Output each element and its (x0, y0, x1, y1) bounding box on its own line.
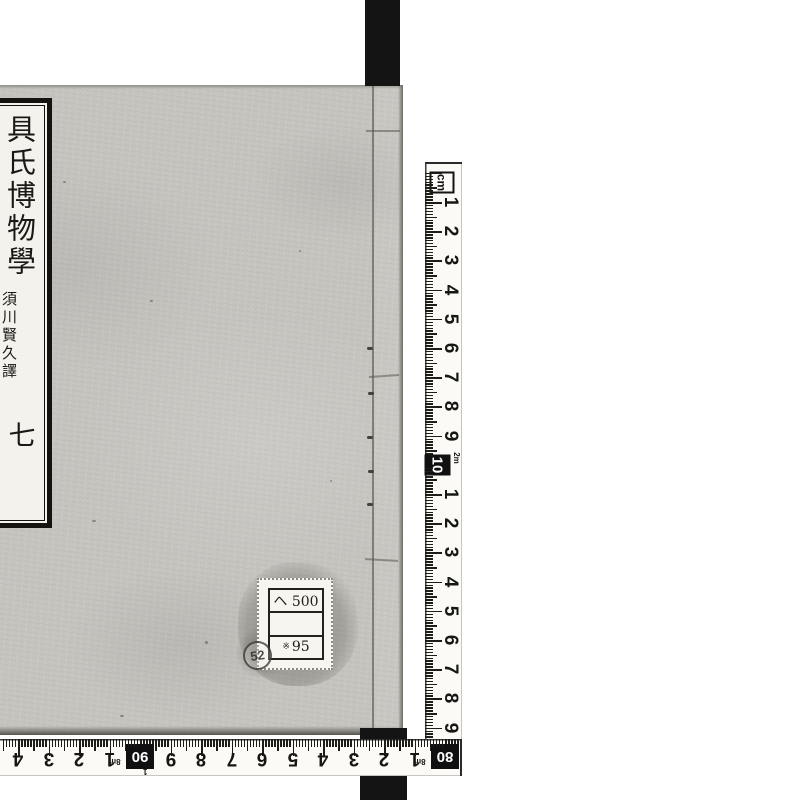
ruler-tick (425, 716, 433, 718)
ruler-tick (265, 739, 267, 747)
ruler-tick (425, 614, 433, 616)
ruler-tick (329, 739, 331, 747)
ruler-tick (277, 739, 279, 751)
ruler-tick (271, 739, 273, 747)
ruler-tick (425, 570, 433, 572)
ruler-tick (425, 666, 433, 668)
ruler-tick (387, 739, 389, 747)
ruler-tick (425, 506, 433, 508)
ruler-tick (425, 187, 437, 189)
call-number-row2 (270, 613, 322, 636)
ruler-tick (425, 695, 433, 697)
ruler-tick (183, 739, 185, 747)
ruler-tick (235, 739, 237, 747)
paper-fleck (330, 480, 332, 482)
ruler-tick (425, 421, 437, 423)
ruler-tick (425, 214, 433, 216)
ruler-tick (192, 739, 194, 747)
ruler-tick (425, 503, 433, 505)
ruler-tick (259, 739, 261, 747)
ruler-digit: 9 (440, 718, 460, 738)
ruler-tick (425, 316, 433, 318)
ruler-tick (425, 672, 433, 674)
ruler-tick (425, 544, 433, 546)
ruler-tick (425, 272, 433, 274)
ruler-tick (425, 310, 433, 312)
ruler-tick (425, 368, 433, 370)
ruler-tick (103, 739, 105, 747)
ruler-tick (433, 739, 435, 747)
horizontal-ruler: 808m123456789908m11234 (0, 739, 462, 776)
ruler-tick (425, 731, 433, 733)
ruler-tick (225, 739, 227, 747)
ruler-tick (418, 739, 420, 747)
ruler-tick (204, 739, 206, 747)
binding-stitch (367, 436, 373, 439)
ruler-tick (425, 681, 433, 683)
ruler-tick (131, 739, 133, 747)
ruler-tick (189, 739, 191, 747)
ruler-tick (425, 269, 433, 271)
ruler-tick (64, 739, 66, 751)
ruler-digit: 1 (405, 748, 425, 768)
ruler-tick (425, 532, 433, 534)
ruler-tick (425, 500, 433, 502)
ruler-tick (425, 351, 433, 353)
ruler-digit: 8 (440, 396, 460, 416)
ruler-tick (425, 360, 433, 362)
ruler-tick (425, 284, 433, 286)
ruler-tick (314, 739, 316, 747)
ruler-tick (425, 430, 433, 432)
ruler-tick (425, 693, 433, 695)
ruler-tick (425, 620, 433, 622)
ruler-tick (425, 564, 433, 566)
paper-fleck (299, 250, 301, 252)
ruler-tick (425, 363, 437, 365)
ruler-tick (94, 739, 96, 751)
ruler-tick (425, 333, 437, 335)
ruler-tick (425, 631, 433, 633)
ruler-tick (425, 579, 433, 581)
ruler-tick (3, 739, 5, 751)
ruler-digit: 5 (440, 309, 460, 329)
ruler-tick (344, 739, 346, 747)
ruler-tick (97, 739, 99, 747)
paper-fleck (63, 181, 66, 183)
ruler-tick (396, 739, 398, 747)
ruler-digit: 1 (440, 192, 460, 212)
ruler-tick (137, 739, 139, 747)
ruler-tick (366, 739, 368, 747)
ruler-tick (369, 739, 371, 751)
ruler-digit: 4 (313, 748, 333, 768)
ruler-tick (296, 739, 298, 747)
ruler-tick (253, 739, 255, 747)
ruler-tick (42, 739, 44, 747)
ruler-decade-box: 90 (126, 744, 154, 769)
ruler-tick (402, 739, 404, 747)
ruler-tick (195, 739, 197, 747)
ruler-tick (425, 401, 433, 403)
ruler-tick (425, 491, 433, 493)
ruler-tick (210, 739, 212, 747)
ruler-tick (425, 255, 433, 257)
ruler-tick (85, 739, 87, 747)
ruler-tick (216, 739, 218, 751)
ruler-tick (21, 739, 23, 747)
ruler-tick (425, 184, 433, 186)
ruler-tick (67, 739, 69, 747)
ruler-tick (222, 739, 224, 747)
ruler-tick (425, 713, 437, 715)
ruler-tick (425, 389, 433, 391)
ruler-tick (425, 474, 433, 476)
ruler-tick (425, 374, 433, 376)
call-number-row1: ヘ 500 (270, 590, 322, 613)
ruler-tick (425, 234, 433, 236)
ruler-tick (305, 739, 307, 747)
title-label-inner-border: 具氏博物學 須川賢久譯 七 (0, 105, 45, 521)
ruler-tick (425, 637, 433, 639)
title-label: 具氏博物學 須川賢久譯 七 (0, 98, 52, 528)
ruler-tick (425, 558, 433, 560)
ruler-tick (186, 739, 188, 751)
ruler-digit: 2 (69, 748, 89, 768)
ruler-tick (122, 739, 124, 747)
ruler-tick (393, 739, 395, 747)
ruler-tick (425, 605, 433, 607)
ruler-tick (425, 220, 433, 222)
book-cover: 具氏博物學 須川賢久譯 七 ヘ 500 ※ 95 52 (0, 85, 403, 735)
binding-stitch (367, 503, 373, 506)
ruler-tick (425, 266, 433, 268)
ruler-tick (425, 678, 433, 680)
ruler-tick (158, 739, 160, 747)
ruler-tick (425, 263, 433, 265)
ruler-tick (425, 634, 433, 636)
ruler-digit: 4 (8, 748, 28, 768)
ruler-tick (425, 252, 433, 254)
cm-unit-label: cm (430, 172, 455, 194)
ruler-tick (425, 298, 433, 300)
call-number-row3: ※ 95 (270, 637, 322, 658)
ruler-tick (425, 660, 433, 662)
ruler-tick (425, 395, 433, 397)
ruler-tick (425, 602, 433, 604)
ruler-tick (332, 739, 334, 747)
ruler-tick (250, 739, 252, 747)
ruler-tick (425, 339, 433, 341)
ruler-tick (439, 739, 441, 747)
ruler-tick (390, 739, 392, 747)
ruler-tick (6, 739, 8, 747)
ruler-tick (425, 304, 437, 306)
ruler-digit: 5 (440, 601, 460, 621)
ruler-tick (425, 307, 433, 309)
ruler-tick (425, 392, 437, 394)
ruler-tick (425, 205, 433, 207)
cover-bottom-edge (0, 726, 403, 735)
binding-stitch (368, 470, 374, 473)
ruler-tick (52, 739, 54, 747)
ruler-tick (425, 684, 437, 686)
ruler-tick (213, 739, 215, 747)
ruler-tick (82, 739, 84, 747)
ruler-tick (425, 424, 433, 426)
ruler-tick (317, 739, 319, 747)
ruler-tick (350, 739, 352, 747)
ruler-tick (425, 345, 433, 347)
ruler-tick (73, 739, 75, 747)
ruler-tick (425, 182, 433, 184)
ruler-tick (113, 739, 115, 747)
ruler-decade-box: 10 (425, 454, 451, 475)
paper-fleck (120, 715, 124, 717)
ruler-tick (430, 739, 432, 751)
ruler-tick (425, 439, 433, 441)
ruler-tick (425, 330, 433, 332)
ruler-tick (425, 342, 433, 344)
ruler-tick (228, 739, 230, 747)
ruler-tick (244, 739, 246, 747)
ruler-tick (425, 415, 433, 417)
ruler-tick (425, 655, 437, 657)
ruler-tick (274, 739, 276, 747)
ruler-tick (425, 450, 437, 452)
ruler-digit: 4 (440, 280, 460, 300)
ruler-tick (357, 739, 359, 747)
ruler-tick (425, 526, 433, 528)
ruler-digit: 7 (440, 367, 460, 387)
ruler-tick (425, 193, 433, 195)
ruler-tick (302, 739, 304, 747)
ruler-tick (12, 739, 14, 747)
ruler-tick (134, 739, 136, 747)
ruler-tick (27, 739, 29, 747)
ruler-digit: 2 (440, 513, 460, 533)
ruler-tick (425, 336, 433, 338)
ruler-tick (408, 739, 410, 747)
binding-stitch (367, 347, 373, 350)
ruler-tick (36, 739, 38, 747)
ruler-tick (425, 412, 433, 414)
ruler-tick (425, 222, 433, 224)
ruler-tick (219, 739, 221, 747)
ruler-tick (425, 547, 433, 549)
ruler-tick (425, 555, 433, 557)
ruler-tick (45, 739, 47, 747)
ruler-tick (425, 246, 437, 248)
ruler-digit: 6 (440, 630, 460, 650)
ruler-tick (425, 427, 433, 429)
ruler-tick (425, 403, 433, 405)
ruler-tick (425, 509, 437, 511)
ruler-tick (116, 739, 118, 747)
ruler-tick (425, 512, 433, 514)
ruler-tick (425, 371, 433, 373)
ruler-tick (125, 739, 127, 751)
ruler-tick (425, 386, 433, 388)
ruler-tick (399, 739, 401, 751)
registration-bar-top (365, 0, 400, 86)
crease-mark (366, 130, 400, 132)
ruler-digit: 1 (100, 748, 120, 768)
ruler-tick (39, 739, 41, 747)
ruler-digit: 4 (440, 572, 460, 592)
ruler-tick (363, 739, 365, 747)
ruler-tick (425, 701, 433, 703)
call-number-grid: ヘ 500 ※ 95 (268, 588, 324, 660)
ruler-tick (106, 739, 108, 747)
ruler-tick (207, 739, 209, 747)
ruler-digit: 3 (39, 748, 59, 768)
ruler-tick (425, 380, 433, 382)
ruler-tick (70, 739, 72, 747)
ruler-tick (177, 739, 179, 747)
ruler-tick (180, 739, 182, 747)
ruler-tick (238, 739, 240, 747)
ruler-tick (425, 173, 442, 175)
ruler-tick (425, 383, 433, 385)
paper-fleck (205, 641, 208, 644)
ruler-tick (155, 739, 157, 751)
ruler-tick (425, 599, 433, 601)
ruler-tick (15, 739, 17, 747)
ruler-tick (55, 739, 57, 747)
ruler-tick (425, 722, 433, 724)
ruler-tick (425, 649, 433, 651)
ruler-tick (283, 739, 285, 747)
ruler-tick (425, 366, 433, 368)
ruler-tick (425, 725, 433, 727)
ruler-tick (425, 476, 433, 478)
ruler-digit: 8 (440, 688, 460, 708)
ruler-tick (425, 398, 433, 400)
ruler-tick (320, 739, 322, 747)
ruler-tick (425, 590, 433, 592)
ruler-tick (375, 739, 377, 747)
ruler-tick (425, 541, 433, 543)
ruler-tick (88, 739, 90, 747)
ruler-digit: 6 (252, 748, 272, 768)
ruler-tick (91, 739, 93, 747)
ruler-tick (425, 225, 433, 227)
ruler-tick (425, 561, 433, 563)
ruler-tick (425, 441, 433, 443)
ruler-tick (425, 409, 433, 411)
ruler-tick (425, 275, 437, 277)
ruler-tick (425, 628, 433, 630)
ruler-tick (425, 514, 433, 516)
ruler-tick (425, 520, 433, 522)
ruler-tick (119, 739, 121, 747)
ruler-tick (167, 739, 169, 747)
book-title: 具氏博物學 (5, 114, 34, 279)
ruler-tick (425, 325, 433, 327)
ruler-digit: 8 (191, 748, 211, 768)
ruler-tick (425, 293, 433, 295)
vertical-ruler: cm 123456789102m123456789 (425, 162, 462, 742)
ruler-tick (425, 479, 437, 481)
ruler-tick (425, 354, 433, 356)
ruler-tick (425, 690, 433, 692)
ruler-tick (425, 237, 433, 239)
ruler-tick (425, 719, 433, 721)
ruler-tick (425, 278, 433, 280)
ruler-tick (425, 529, 433, 531)
ruler-tick (425, 295, 433, 297)
ruler-digit: 2 (440, 221, 460, 241)
ruler-tick (30, 739, 32, 747)
ruler-tick (425, 608, 433, 610)
ruler-tick (425, 482, 433, 484)
ruler-tick (425, 576, 433, 578)
ruler-tick (425, 287, 433, 289)
ruler-tick (425, 196, 433, 198)
ruler-tick (425, 217, 437, 219)
ruler-tick (425, 549, 433, 551)
ruler-digit: 2 (374, 748, 394, 768)
ruler-tick (425, 179, 433, 181)
scanned-book-photo: 具氏博物學 須川賢久譯 七 ヘ 500 ※ 95 52 cm 1234 (0, 0, 800, 800)
ruler-tick (381, 739, 383, 747)
ruler-tick (425, 199, 433, 201)
ruler-tick (425, 704, 433, 706)
ruler-tick (425, 281, 433, 283)
call-number-value: 95 (292, 639, 310, 655)
ruler-digit: 9 (440, 426, 460, 446)
ruler-tick (425, 658, 433, 660)
ruler-tick (425, 190, 433, 192)
ruler-tick (425, 497, 433, 499)
stamp-number: 52 (249, 647, 265, 664)
ruler-tick (198, 739, 200, 747)
ruler-tick (427, 739, 429, 747)
ruler-tick (338, 739, 340, 751)
ruler-tick (100, 739, 102, 747)
ruler-tick (33, 739, 35, 751)
ruler-tick (405, 739, 407, 747)
ruler-tick (442, 739, 444, 747)
ruler-tick (436, 739, 438, 747)
small-mark: ※ (282, 642, 290, 652)
ruler-tick (280, 739, 282, 747)
ruler-tick (425, 488, 433, 490)
ruler-tick (425, 733, 433, 735)
spine-crease (372, 85, 374, 735)
ruler-tick (425, 418, 433, 420)
ruler-tick (299, 739, 301, 747)
ruler-tick (425, 596, 437, 598)
ruler-tick (174, 739, 176, 747)
ruler-tick (425, 328, 433, 330)
ruler-tick (424, 739, 426, 747)
cover-right-edge (398, 85, 403, 735)
ruler-tick (61, 739, 63, 747)
paper-fleck (92, 520, 96, 522)
ruler-tick (9, 739, 11, 747)
ruler-tick (425, 617, 433, 619)
cover-top-edge (0, 85, 403, 89)
ruler-tick (378, 739, 380, 747)
ruler-decade-box: 80 (431, 744, 459, 769)
ruler-digit: 7 (440, 659, 460, 679)
ruler-tick (425, 652, 433, 654)
ruler-tick (425, 643, 433, 645)
ruler-tick (425, 257, 433, 259)
ruler-tick (425, 176, 433, 178)
